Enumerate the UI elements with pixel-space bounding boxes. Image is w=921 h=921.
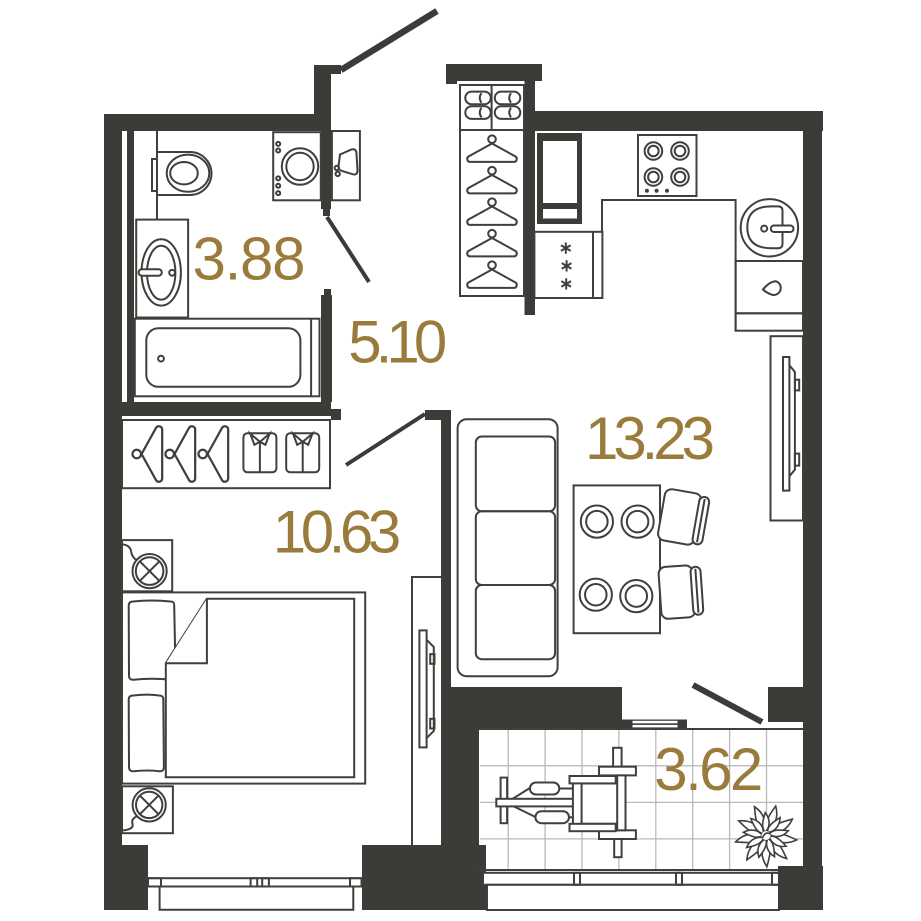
svg-text:3.62: 3.62 [654, 736, 763, 803]
svg-text:10.63: 10.63 [273, 498, 402, 565]
svg-text:5.10: 5.10 [348, 309, 447, 376]
svg-text:3.88: 3.88 [193, 225, 306, 292]
svg-text:13.23: 13.23 [585, 405, 715, 472]
